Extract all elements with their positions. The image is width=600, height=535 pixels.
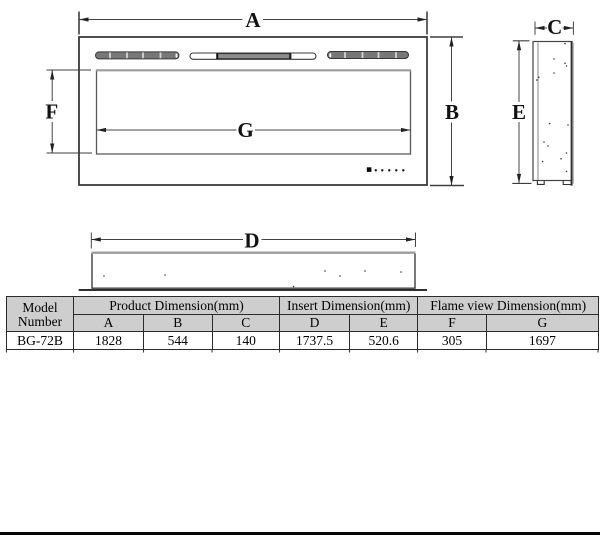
svg-text:E: E — [512, 100, 526, 124]
svg-text:D: D — [244, 228, 259, 252]
svg-text:B: B — [445, 100, 459, 124]
svg-text:C: C — [547, 15, 562, 39]
svg-text:A: A — [245, 8, 261, 32]
svg-text:G: G — [237, 118, 253, 142]
svg-text:F: F — [45, 99, 58, 123]
